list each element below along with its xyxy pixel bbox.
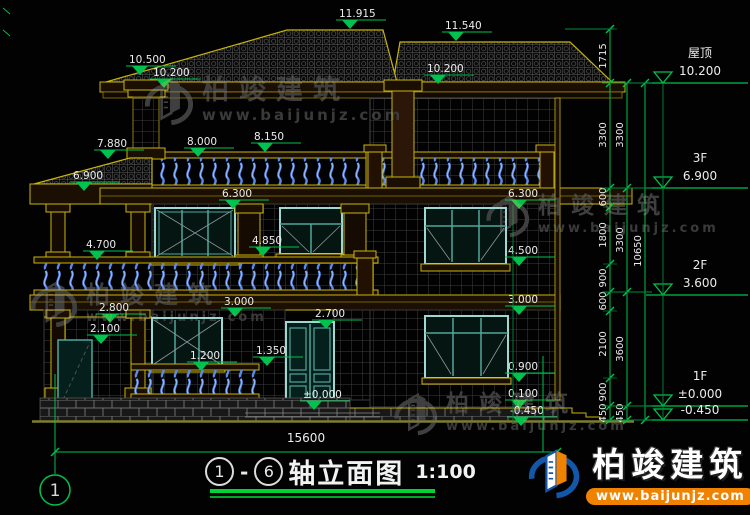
overall-dimension-value: 15600 <box>287 431 325 445</box>
dim-chain-value: 900 <box>598 268 609 287</box>
level-marker-value: 6.300 <box>508 188 538 200</box>
axis-bubble-1: 1 <box>40 475 70 505</box>
dim-chain-value: 3300 <box>598 122 609 147</box>
window-1f-right <box>422 316 511 384</box>
level-marker-value: 3.000 <box>508 294 538 306</box>
floor-level-value: -0.450 <box>681 403 720 417</box>
title-axis-end: 6 <box>254 457 283 486</box>
level-marker-value: 4.700 <box>86 239 116 251</box>
floor-level-value: ±0.000 <box>678 387 722 401</box>
level-marker-value: 1.350 <box>256 345 286 357</box>
dim-chain-value: 10650 <box>633 235 644 267</box>
floor-level: 3F6.900 <box>646 151 748 188</box>
drawing-title: 1 - 6 轴立面图 1:100 <box>205 452 476 491</box>
floor-level-label: 3F <box>693 151 708 165</box>
brand-logo: 柏竣建筑 www.baijunjz.com <box>524 438 750 505</box>
level-marker-value: 10.200 <box>427 63 464 75</box>
level-marker-value: 2.100 <box>90 323 120 335</box>
side-steps <box>558 408 622 421</box>
cornice-2f <box>100 188 632 204</box>
title-axis-start: 1 <box>205 457 234 486</box>
brand-logo-site: www.baijunjz.com <box>586 488 750 505</box>
title-underline <box>210 489 435 493</box>
dim-chain-value: 1800 <box>598 222 609 247</box>
floor-level: 1F±0.000 <box>646 369 748 406</box>
dim-chain-value: 1715 <box>598 43 609 68</box>
window-2f-left <box>155 208 235 258</box>
level-marker-value: 8.000 <box>187 136 217 148</box>
level-marker-value: 11.915 <box>339 8 376 20</box>
cad-elevation-screenshot: 11.91511.54010.50010.20010.2007.8808.000… <box>0 0 750 515</box>
balustrade-3f <box>144 145 558 191</box>
level-marker-value: 3.000 <box>224 296 254 308</box>
level-marker-value: ±0.000 <box>303 389 342 401</box>
title-dash: - <box>240 460 248 484</box>
level-marker-value: 6.300 <box>222 188 252 200</box>
dim-chain-value: 3300 <box>615 122 626 147</box>
level-marker-value: 0.900 <box>508 361 538 373</box>
dim-chain-value: 900 <box>598 382 609 401</box>
floor-level-label: 2F <box>693 258 708 272</box>
floor-level-value: 3.600 <box>683 276 717 290</box>
dim-chain: 10650 <box>633 79 652 424</box>
level-marker-value: 10.200 <box>153 67 190 79</box>
balustrade-2f <box>34 251 378 296</box>
level-marker-value: 8.150 <box>254 131 284 143</box>
level-marker-value: 10.500 <box>129 54 166 66</box>
dim-chain-value: 600 <box>598 187 609 206</box>
title-text: 轴立面图 <box>288 452 404 491</box>
floor-level: 2F3.600 <box>646 258 748 295</box>
balustrade-1f <box>131 364 259 400</box>
brand-logo-icon <box>524 442 580 502</box>
level-marker-value: 7.880 <box>97 138 127 150</box>
dim-chain-value: 2100 <box>598 331 609 356</box>
floor-level-label: 屋顶 <box>688 46 712 60</box>
floor-level-symbols: 屋顶10.2003F6.9002F3.6001F±0.000-0.450 <box>646 46 748 420</box>
corner-trim <box>555 98 560 400</box>
floor-level-value: 6.900 <box>683 169 717 183</box>
level-marker-value: 1.200 <box>190 350 220 362</box>
wall-1f-mid <box>334 310 370 400</box>
window-2f-right <box>425 208 506 264</box>
level-marker-value: 11.540 <box>445 20 482 32</box>
eave-cornice <box>100 82 625 98</box>
dim-chain-value: 3600 <box>615 336 626 361</box>
roof-right <box>393 42 612 82</box>
svg-text:1: 1 <box>50 481 61 501</box>
dim-chain: 330033003600450 <box>615 79 634 424</box>
level-marker-value: 0.100 <box>508 388 538 400</box>
level-marker-value: 4.850 <box>252 235 282 247</box>
column-3f-left <box>124 80 168 159</box>
level-marker: 11.915 <box>336 8 386 29</box>
level-marker-value: 2.800 <box>99 302 129 314</box>
floor-level-value: 10.200 <box>679 64 721 78</box>
level-marker-value: 2.700 <box>315 308 345 320</box>
floor-level: 屋顶10.200 <box>646 46 748 83</box>
dim-chain-value: 3300 <box>615 227 626 252</box>
sill <box>421 264 510 271</box>
level-marker: 8.150 <box>251 131 301 152</box>
dim-chain-value: 600 <box>598 291 609 310</box>
brand-logo-text: 柏竣建筑 <box>592 438 748 486</box>
level-marker-value: 4.500 <box>508 245 538 257</box>
title-scale: 1:100 <box>415 461 475 483</box>
title-underline-thin <box>210 496 435 498</box>
level-marker-value: 6.900 <box>73 170 103 182</box>
floor-level-label: 1F <box>693 369 708 383</box>
level-marker: 11.540 <box>442 20 492 41</box>
level-marker-value: -0.450 <box>510 405 544 417</box>
